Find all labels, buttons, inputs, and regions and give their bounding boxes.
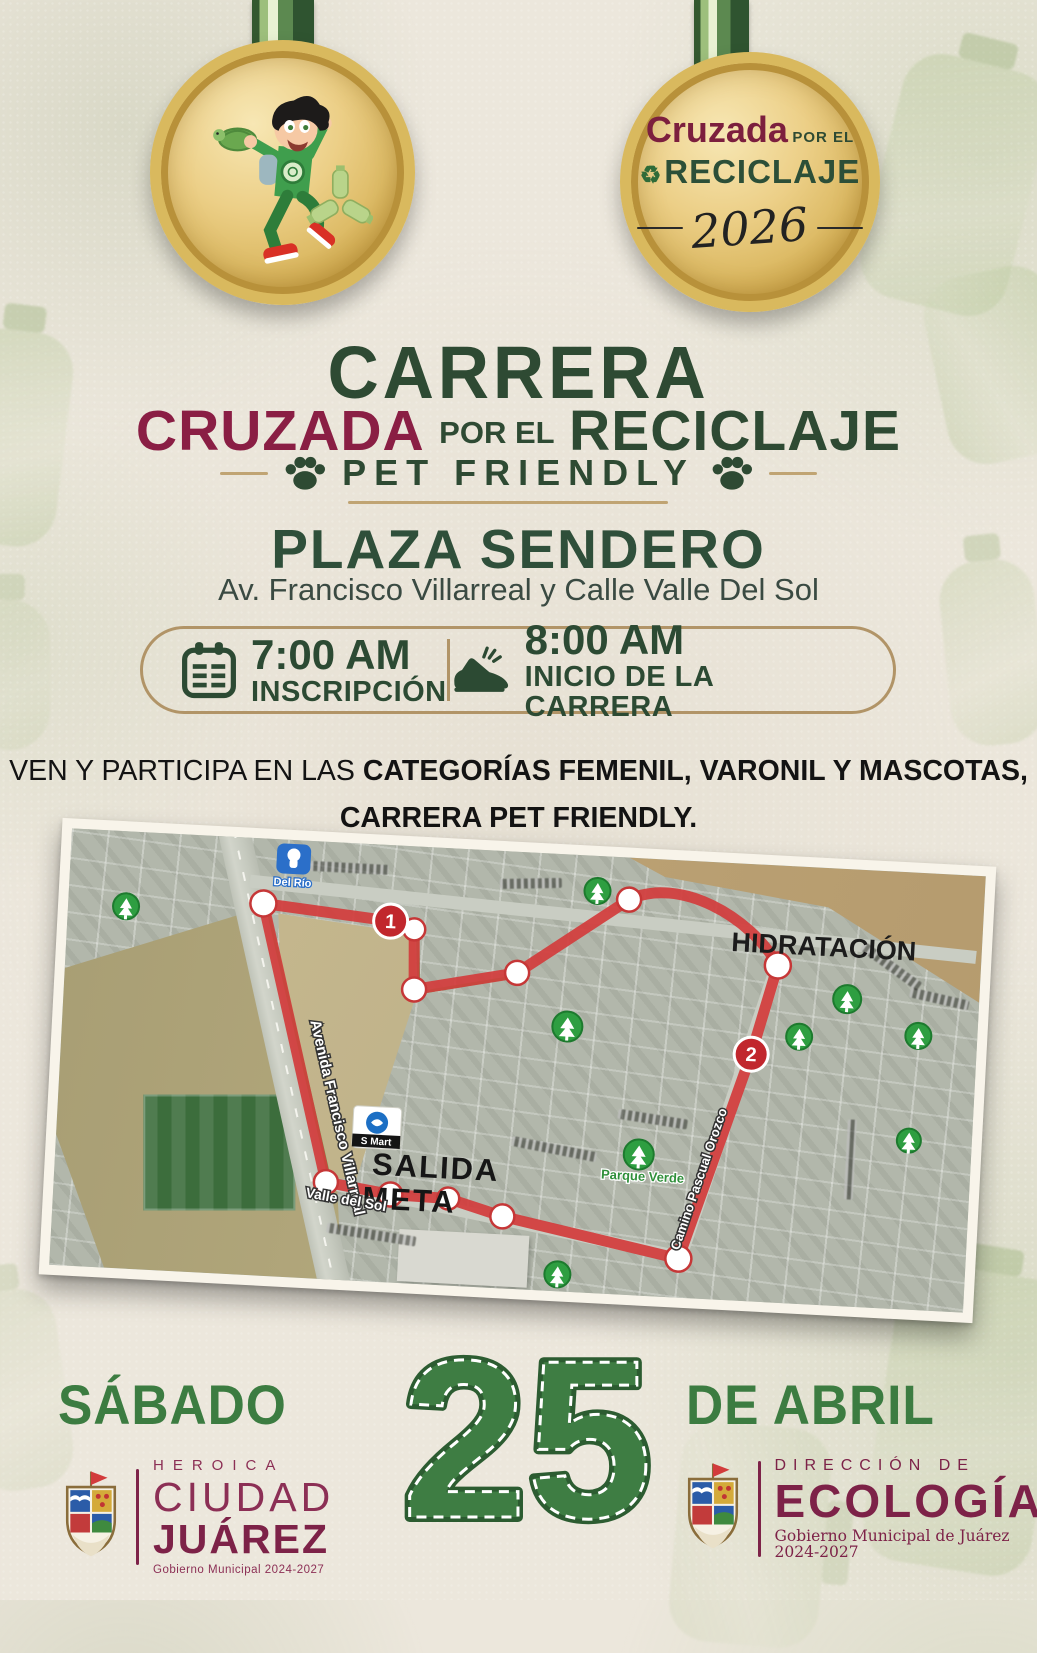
svg-text:25: 25: [402, 1313, 652, 1562]
race-start-item: 8:00 AM INICIO DE LA CARRERA: [450, 618, 855, 723]
recycle-icon: ♻: [640, 162, 663, 189]
bottle-watermark: [0, 600, 50, 750]
title-por-el: POR EL: [439, 415, 554, 451]
flourish-line: [817, 227, 863, 229]
gobierno-juarez-label: Gobierno Municipal de Juárez 2024-2027: [775, 1529, 1037, 1561]
heroica-label: HEROICA: [153, 1458, 334, 1473]
footer-divider: [758, 1461, 761, 1557]
invite-line1: VEN Y PARTICIPA EN LAS CATEGORÍAS FEMENI…: [0, 748, 1037, 795]
route-marker-1: 1: [373, 903, 409, 939]
smart-logo: S Mart: [352, 1105, 402, 1149]
date-number: 25 25 25: [392, 1312, 662, 1562]
city-crest-icon: [682, 1461, 744, 1557]
medal-brand-reciclaje: ♻RECICLAJE: [640, 153, 861, 191]
invite-categories: CATEGORÍAS FEMENIL, VARONIL Y MASCOTAS,: [363, 755, 1028, 787]
registration-item: 7:00 AM INSCRIPCIÓN: [181, 633, 447, 708]
paw-icon: [284, 453, 326, 493]
medal-brand-por-el: POR EL: [792, 129, 854, 146]
registration-label: INSCRIPCIÓN: [251, 677, 447, 707]
medal-right: Cruzada POR EL ♻RECICLAJE 2026: [620, 52, 880, 312]
city-crest-icon: [60, 1469, 122, 1565]
svg-text:Del Río: Del Río: [273, 876, 312, 890]
footer-divider: [136, 1469, 139, 1565]
direccion-label: DIRECCIÓN DE: [775, 1458, 1037, 1474]
hydration-label: HIDRATACIÓN: [731, 926, 917, 967]
decorative-underline: [348, 501, 668, 504]
route-map: 1 2 HIDRATACIÓN SALIDA M: [39, 818, 997, 1323]
pet-friendly-label: PET FRIENDLY: [342, 452, 695, 494]
medal-left: [150, 40, 415, 305]
running-shoe-icon: [450, 641, 511, 699]
medal-brand-line1: Cruzada POR EL: [646, 109, 854, 151]
medal-year-row: 2026: [637, 201, 862, 255]
poster-background: { "medal_right": { "brand_a": "Cruzada",…: [0, 0, 1037, 1600]
ciudad-label: CIUDAD: [153, 1477, 334, 1519]
recycle-bottles-icon: [304, 165, 372, 227]
route-waypoints: [232, 868, 794, 1277]
footer-ecologia: DIRECCIÓN DE ECOLOGÍA Gobierno Municipal…: [682, 1458, 1037, 1561]
race-start-time: 8:00 AM: [525, 618, 855, 662]
medal-year: 2026: [690, 197, 811, 259]
route-marker-2: 2: [733, 1036, 769, 1072]
marker-number: 1: [384, 911, 396, 934]
pet-friendly-row: PET FRIENDLY: [0, 452, 1037, 494]
footer-ciudad-juarez: HEROICA CIUDAD JUÁREZ Gobierno Municipal…: [60, 1458, 334, 1577]
park-label: Parque Verde: [601, 1167, 685, 1186]
decorative-line: [220, 472, 268, 475]
runner-mascot-illustration: [193, 81, 373, 265]
delrio-logo: Del Río: [273, 843, 313, 890]
gobierno-label: Gobierno Municipal 2024-2027: [153, 1565, 334, 1577]
venue-address: Av. Francisco Villarreal y Calle Valle D…: [0, 572, 1037, 608]
map-satellite-image: 1 2 HIDRATACIÓN SALIDA M: [49, 828, 986, 1312]
paw-icon: [711, 453, 753, 493]
juarez-label: JUÁREZ: [153, 1519, 334, 1561]
calendar-icon: [181, 641, 237, 699]
medal-brand-cruzada: Cruzada: [646, 109, 788, 150]
svg-text:S Mart: S Mart: [361, 1136, 393, 1149]
flourish-line: [637, 227, 683, 229]
park-tree-icons: [94, 853, 938, 1307]
date-day: SÁBADO: [58, 1372, 287, 1437]
ecologia-label: ECOLOGÍA: [775, 1478, 1037, 1525]
marker-number: 2: [745, 1044, 757, 1067]
route-overlay: 1 2 HIDRATACIÓN SALIDA M: [49, 828, 986, 1310]
schedule-box: 7:00 AM INSCRIPCIÓN 8:00 AM INICIO DE LA…: [140, 626, 896, 714]
date-month: DE ABRIL: [686, 1372, 935, 1437]
registration-time: 7:00 AM: [251, 633, 447, 677]
decorative-line: [769, 472, 817, 475]
race-start-label: INICIO DE LA CARRERA: [525, 662, 855, 723]
